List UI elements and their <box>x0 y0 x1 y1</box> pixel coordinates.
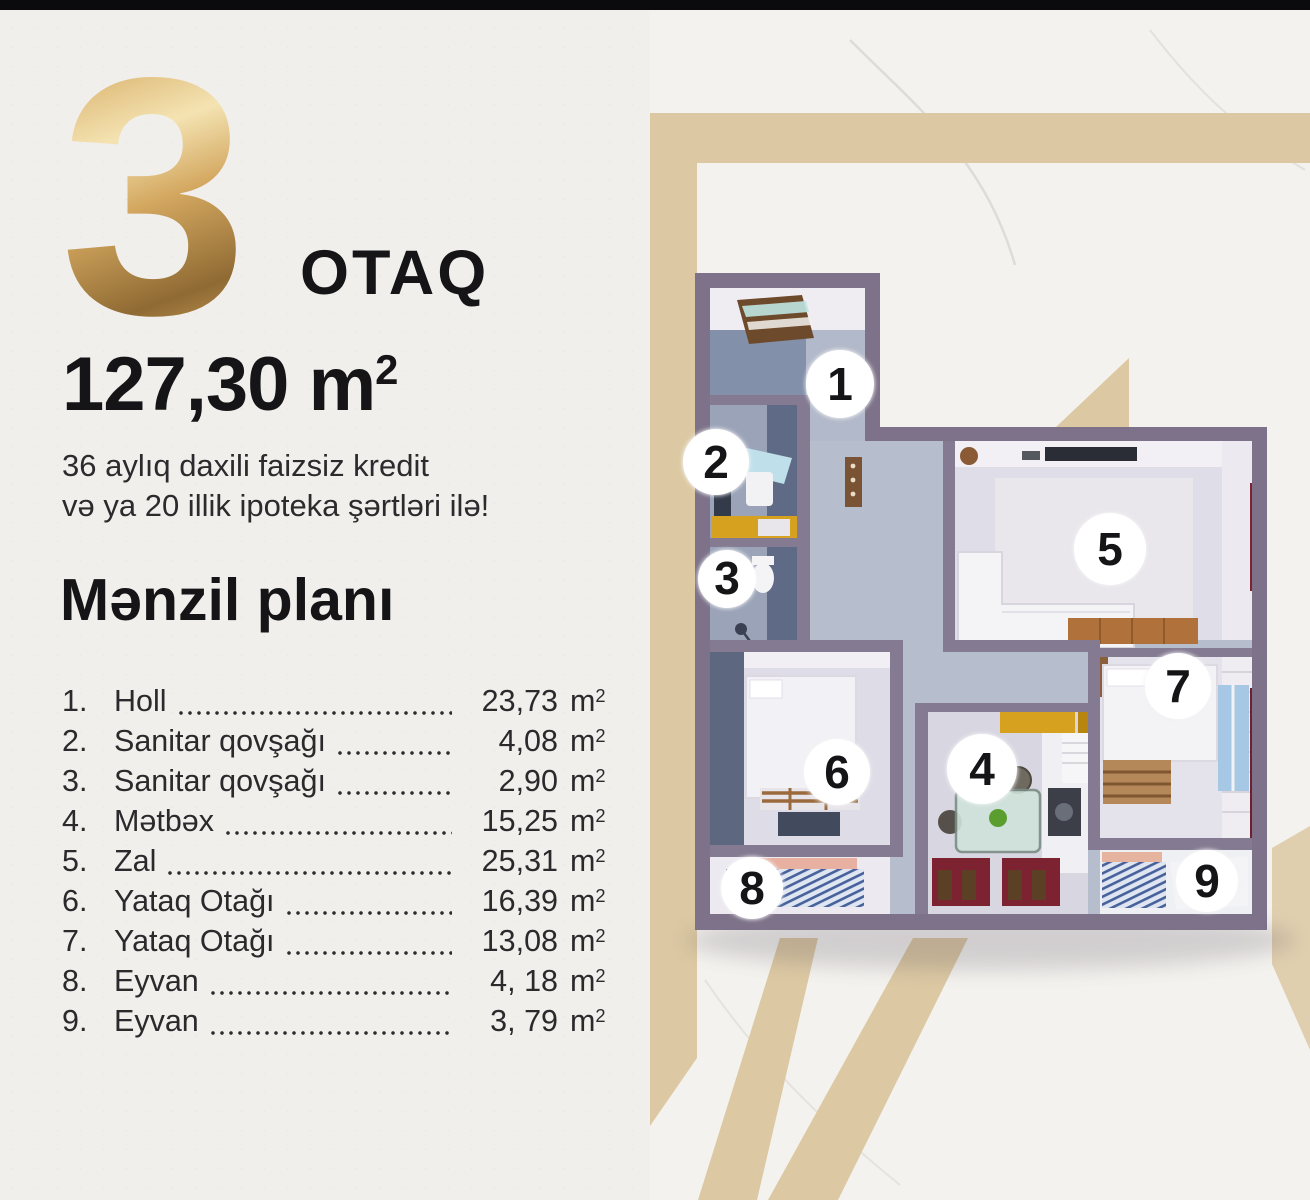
badge-4: 4 <box>947 734 1017 804</box>
room-list: 1.Holl23,73m2 2.Sanitar qovşağı4,08m2 3.… <box>62 684 624 1044</box>
room-area: 23,73 <box>462 684 558 719</box>
room-row: 6.Yataq Otağı16,39m2 <box>62 884 624 924</box>
lattice-screen <box>1062 733 1088 783</box>
info-panel: 3 OTAQ 127,30 m2 36 aylıq daxili faizsiz… <box>0 0 650 1200</box>
svg-text:7: 7 <box>1165 660 1191 712</box>
room-area: 4,08 <box>462 724 558 759</box>
room-row: 2.Sanitar qovşağı4,08m2 <box>62 724 624 764</box>
room-area: 15,25 <box>462 804 558 839</box>
room-row: 3.Sanitar qovşağı2,90m2 <box>62 764 624 804</box>
room-number: 1. <box>62 684 114 719</box>
dotted-leader <box>287 951 452 955</box>
room-area: 13,08 <box>462 924 558 959</box>
svg-text:3: 3 <box>714 552 740 604</box>
svg-text:2: 2 <box>703 436 729 488</box>
room-count-label: OTAQ <box>300 237 489 309</box>
dotted-leader <box>338 791 452 795</box>
badge-8: 8 <box>721 857 783 919</box>
room-name: Yataq Otağı <box>114 884 275 919</box>
glass-panel <box>778 812 840 836</box>
room-row: 5.Zal25,31m2 <box>62 844 624 884</box>
room-number: 9. <box>62 1004 114 1039</box>
peach-cushion <box>1102 852 1162 862</box>
bedroom-6 <box>710 652 890 845</box>
dotted-leader <box>226 831 452 835</box>
room-name: Yataq Otağı <box>114 924 275 959</box>
poster: 3 OTAQ 127,30 m2 36 aylıq daxili faizsiz… <box>0 0 1310 1200</box>
credit-line-1: 36 aylıq daxili faizsiz kredit <box>62 446 489 486</box>
room-number: 5. <box>62 844 114 879</box>
top-black-bar <box>0 0 1310 10</box>
room-name: Sanitar qovşağı <box>114 724 326 759</box>
room-row: 9.Eyvan3, 79m2 <box>62 1004 624 1044</box>
badge-5: 5 <box>1074 513 1146 585</box>
room-name: Zal <box>114 844 156 879</box>
badge-1: 1 <box>806 350 874 418</box>
striped-mat <box>1102 862 1166 908</box>
badge-6: 6 <box>804 739 870 805</box>
room-number: 3. <box>62 764 114 799</box>
total-area: 127,30 m2 <box>62 341 397 428</box>
svg-text:5: 5 <box>1097 523 1123 575</box>
room-row: 4.Mətbəx15,25m2 <box>62 804 624 844</box>
room-number: 8. <box>62 964 114 999</box>
credit-line-2: və ya 20 illik ipoteka şərtləri ilə! <box>62 486 489 526</box>
room-number: 7. <box>62 924 114 959</box>
plan-title: Mənzil planı <box>60 566 394 634</box>
room-number: 2. <box>62 724 114 759</box>
total-area-sup: 2 <box>375 346 397 393</box>
room-area: 4, 18 <box>462 964 558 999</box>
room-area: 2,90 <box>462 764 558 799</box>
credit-text: 36 aylıq daxili faizsiz kredit və ya 20 … <box>62 446 489 526</box>
dotted-leader <box>338 751 452 755</box>
room-name: Mətbəx <box>114 804 214 839</box>
room-row: 8.Eyvan4, 18m2 <box>62 964 624 1004</box>
room-area: 16,39 <box>462 884 558 919</box>
badge-9: 9 <box>1176 850 1238 912</box>
room-area: 3, 79 <box>462 1004 558 1039</box>
accent-wall <box>710 652 744 845</box>
badge-2: 2 <box>683 429 749 495</box>
room-row: 1.Holl23,73m2 <box>62 684 624 724</box>
dotted-leader <box>168 871 452 875</box>
floor-plan-graphic: 1 2 3 4 5 6 7 8 9 <box>650 0 1310 1200</box>
stool <box>960 447 978 465</box>
kitchen <box>928 712 1088 914</box>
svg-text:1: 1 <box>827 358 853 410</box>
dotted-leader <box>211 1031 452 1035</box>
room-name: Eyvan <box>114 964 199 999</box>
total-area-value: 127,30 <box>62 342 288 427</box>
svg-text:6: 6 <box>824 746 850 798</box>
room-count: 3 <box>60 58 242 335</box>
tv <box>1045 447 1137 461</box>
total-area-unit: m <box>309 342 376 427</box>
sink <box>746 472 773 506</box>
upper-cabinets-yellow <box>1000 712 1075 733</box>
floor-plan-panel: 1 2 3 4 5 6 7 8 9 <box>650 0 1310 1200</box>
room-name: Sanitar qovşağı <box>114 764 326 799</box>
svg-text:9: 9 <box>1194 855 1220 907</box>
dotted-leader <box>287 911 452 915</box>
svg-text:4: 4 <box>969 743 995 795</box>
dotted-leader <box>179 711 452 715</box>
svg-text:8: 8 <box>739 862 765 914</box>
dotted-leader <box>211 991 452 995</box>
room-number: 4. <box>62 804 114 839</box>
room-number: 6. <box>62 884 114 919</box>
badge-3: 3 <box>698 550 756 608</box>
hero: 3 OTAQ <box>60 58 489 335</box>
plant <box>989 809 1007 827</box>
room-name: Holl <box>114 684 167 719</box>
room-area: 25,31 <box>462 844 558 879</box>
badge-7: 7 <box>1145 653 1211 719</box>
room-name: Eyvan <box>114 1004 199 1039</box>
room-row: 7.Yataq Otağı13,08m2 <box>62 924 624 964</box>
